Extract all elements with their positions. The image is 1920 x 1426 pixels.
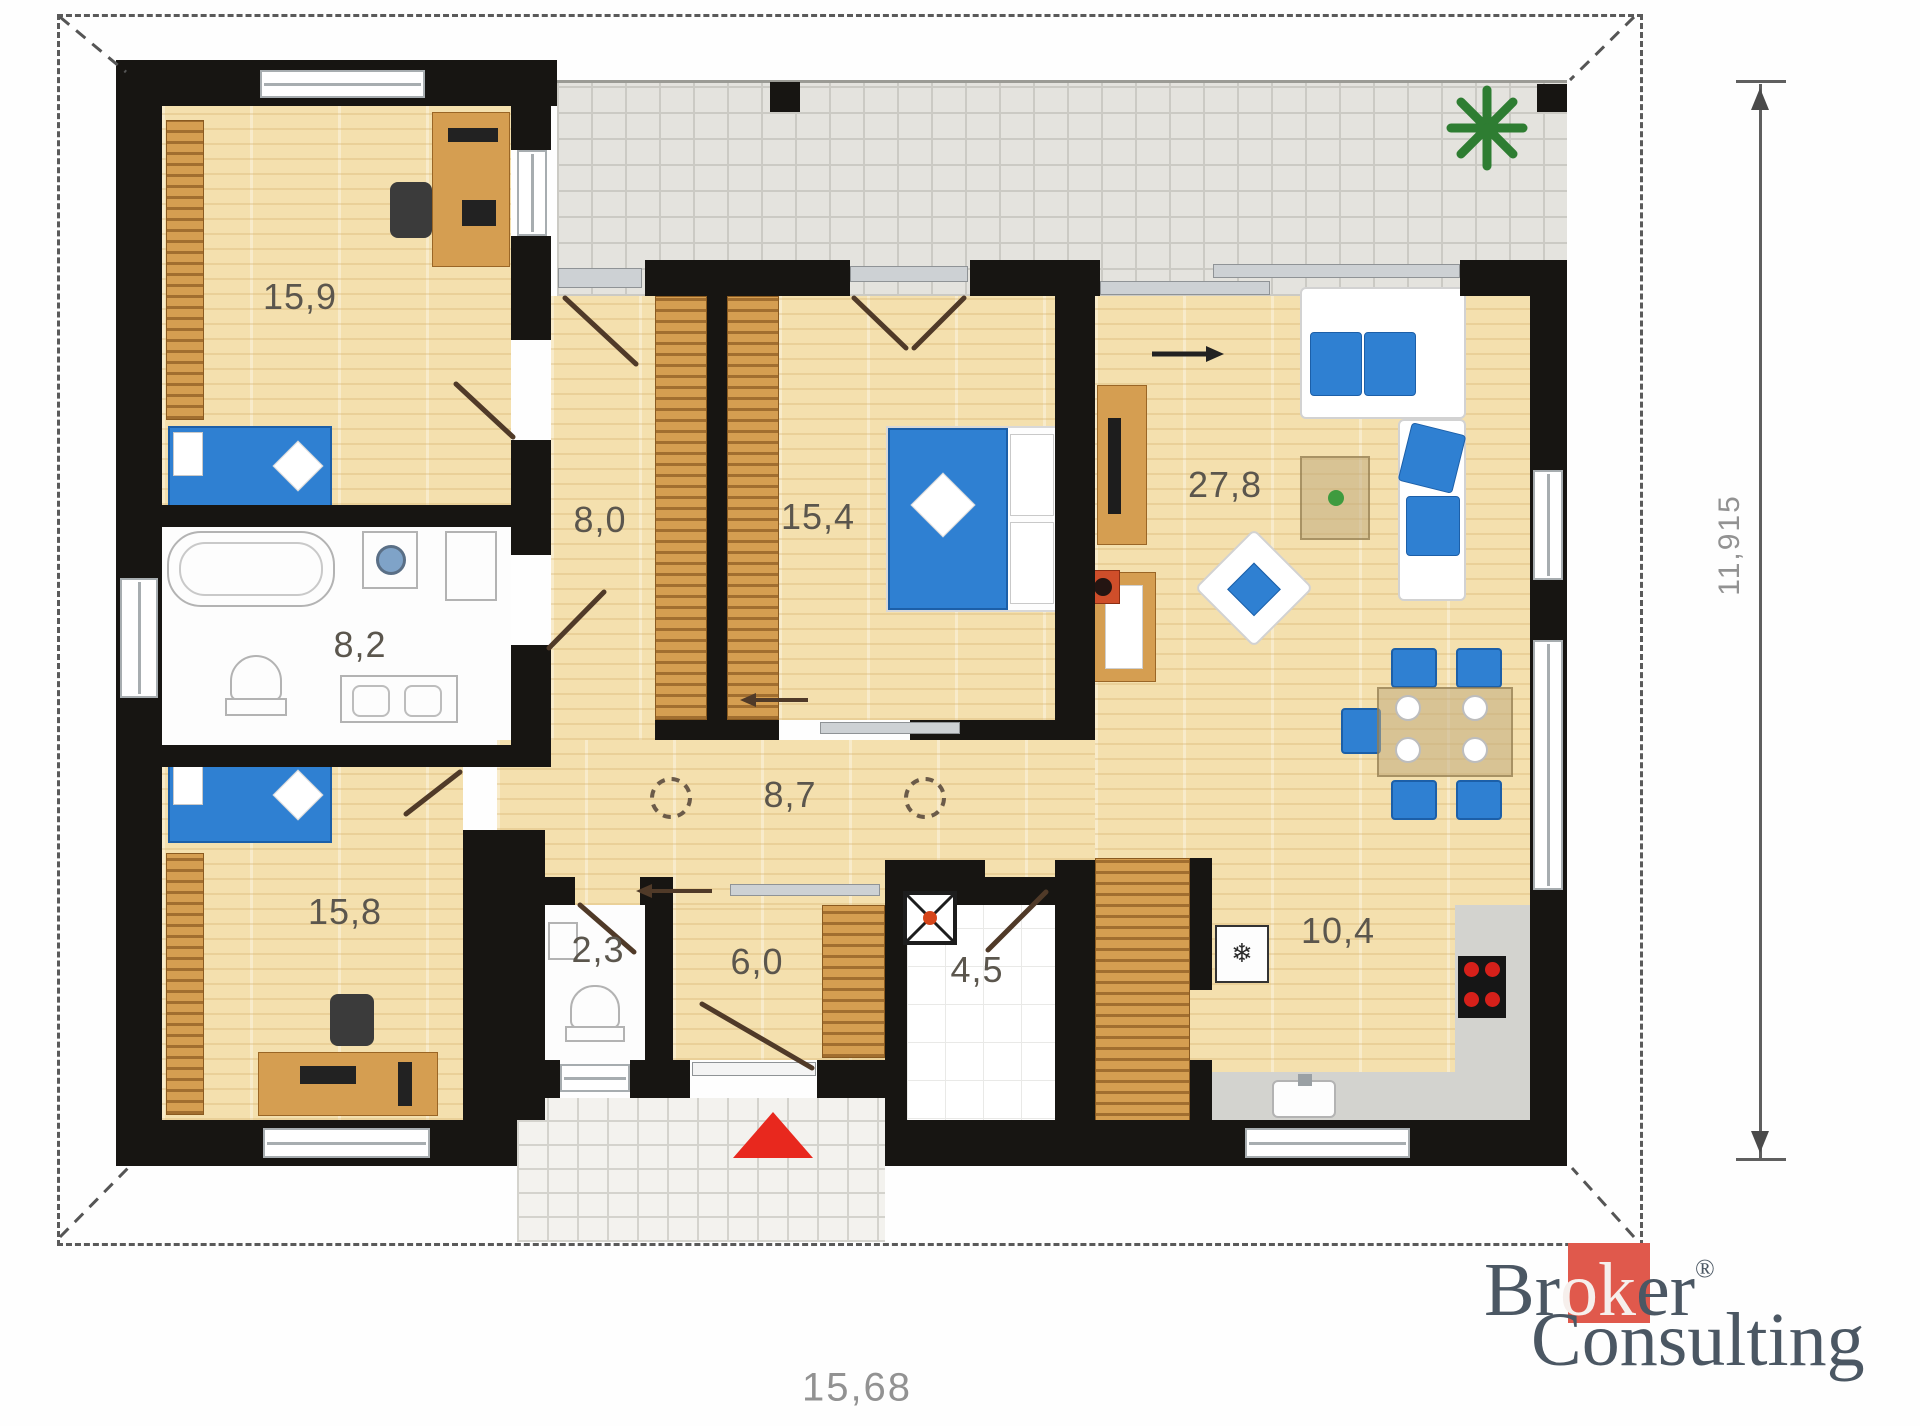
burner-icon: [1485, 962, 1500, 977]
terrace-pillar: [770, 82, 800, 112]
wall-segment: [885, 1120, 1567, 1166]
sink-basin: [404, 685, 442, 717]
room-label-entry: 6,0: [730, 941, 783, 983]
wall-segment: [645, 260, 850, 296]
desk-items: [448, 128, 498, 142]
room-label-kitchen: 10,4: [1301, 910, 1375, 952]
kitchen-sink: [1272, 1080, 1336, 1118]
built-in-wardrobe: [727, 296, 779, 720]
wardrobe: [166, 853, 204, 1115]
toilet-bowl: [230, 655, 282, 701]
window: [1533, 470, 1563, 580]
wall-segment: [655, 720, 779, 740]
sofa-cushion: [1310, 332, 1362, 396]
room-label-bedroom-middle: 15,4: [781, 496, 855, 538]
wall-segment: [511, 106, 551, 150]
cooktop: [1458, 956, 1506, 1018]
wall-segment: [511, 440, 551, 555]
wardrobe: [166, 120, 204, 420]
tv: [1108, 418, 1121, 514]
sliding-door-panel: [850, 266, 968, 282]
coffee-table: [1300, 456, 1370, 540]
dimension-arrow-up: [1751, 88, 1769, 110]
tv-cabinet: [1097, 385, 1147, 545]
room-technical: [907, 890, 1055, 1120]
bathtub-inner: [179, 542, 323, 596]
sliding-door-panel: [820, 722, 960, 734]
stove-ring-icon: [1094, 578, 1112, 596]
wall-segment: [970, 260, 1100, 296]
plate: [1462, 695, 1488, 721]
wall-segment: [1460, 260, 1567, 296]
toilet-tank: [225, 698, 287, 716]
sliding-door-panel: [1213, 264, 1460, 278]
washing-machine: [362, 531, 418, 589]
desk-items: [398, 1062, 412, 1106]
wall-segment: [1190, 1060, 1212, 1128]
window: [517, 150, 547, 236]
pantry-shelves: [1095, 858, 1190, 1128]
room-label-bathroom: 8,2: [333, 624, 386, 666]
window: [1245, 1128, 1410, 1158]
fridge-icon: ❄: [1215, 925, 1269, 983]
entry-wardrobe: [822, 905, 885, 1058]
plate: [1395, 695, 1421, 721]
dining-chair: [1456, 780, 1502, 820]
dining-chair: [1341, 708, 1381, 754]
wall-segment: [640, 877, 673, 905]
desk-chair: [390, 182, 432, 238]
window: [560, 1064, 630, 1092]
window: [260, 70, 425, 98]
wall-segment: [116, 745, 551, 767]
room-label-living-room: 27,8: [1188, 464, 1262, 506]
dimension-tick: [1736, 1158, 1786, 1161]
burner-icon: [1464, 992, 1479, 1007]
armchair-cushion: [1227, 563, 1281, 617]
dimension-line-vertical: [1759, 84, 1762, 1160]
desk-items: [300, 1066, 356, 1084]
room-label-corridor: 8,7: [763, 774, 816, 816]
terrace-edge: [557, 80, 1567, 83]
vanity-double-sink: [340, 675, 458, 723]
washing-machine-drum-icon: [376, 545, 406, 575]
faucet-icon: [1298, 1074, 1312, 1086]
registered-mark-icon: ®: [1695, 1254, 1715, 1283]
room-label-technical: 4,5: [950, 949, 1003, 991]
bathtub: [167, 531, 335, 607]
room-label-wc: 2,3: [571, 929, 624, 971]
sliding-door-panel: [730, 884, 880, 896]
entrance-porch-paving: [517, 1098, 885, 1242]
sink-basin: [352, 685, 390, 717]
entrance-marker-triangle: [733, 1112, 813, 1158]
sliding-door-panel: [1100, 281, 1270, 295]
bed-pillow: [1010, 434, 1054, 516]
wc-toilet-tank: [565, 1026, 625, 1042]
room-label-bedroom-bottom-left: 15,8: [308, 891, 382, 933]
entrance-door-threshold: [692, 1062, 816, 1076]
terrace-door-threshold: [558, 268, 642, 288]
plate: [1395, 737, 1421, 763]
desk-chair: [330, 994, 374, 1046]
dimension-tick: [1736, 80, 1786, 83]
plate: [1462, 737, 1488, 763]
built-in-wardrobe: [655, 296, 707, 720]
bed-pillow: [173, 761, 203, 805]
wall-segment: [1055, 296, 1095, 740]
dimension-label-height: 11,915: [1713, 494, 1747, 596]
bed-pillow: [173, 432, 203, 476]
dimension-arrow-down: [1751, 1131, 1769, 1153]
table-plant-icon: [1328, 490, 1344, 506]
room-label-hall: 8,0: [573, 499, 626, 541]
shower: [445, 531, 497, 601]
bed-pillow: [1010, 522, 1054, 604]
window: [120, 578, 158, 698]
wall-segment: [116, 505, 551, 527]
wall-segment: [545, 877, 575, 905]
burner-icon: [1464, 962, 1479, 977]
wall-segment: [707, 296, 727, 740]
wall-segment: [517, 1060, 560, 1098]
wc-toilet-bowl: [570, 985, 620, 1029]
wall-segment: [817, 1060, 885, 1098]
room-label-bedroom-top-left: 15,9: [263, 276, 337, 318]
wall-segment: [511, 236, 551, 340]
sofa-cushion: [1406, 496, 1460, 556]
dining-chair: [1391, 648, 1437, 688]
wall-segment: [645, 905, 673, 1062]
kitchen-counter-bottom: [1212, 1072, 1530, 1122]
logo-word-consulting: Consulting: [1531, 1302, 1865, 1378]
dining-chair: [1456, 648, 1502, 688]
burner-icon: [1485, 992, 1500, 1007]
wall-segment: [630, 1060, 690, 1098]
window: [1533, 640, 1563, 890]
wall-segment: [1190, 858, 1212, 990]
terrace-pillar: [1537, 84, 1567, 112]
wall-segment: [511, 645, 551, 745]
dining-chair: [1391, 780, 1437, 820]
snowflake-glyph: ❄: [1231, 939, 1253, 969]
window: [263, 1128, 430, 1158]
desk-items: [462, 200, 496, 226]
floor-plan-canvas: ❄: [0, 0, 1920, 1426]
sofa-cushion: [1364, 332, 1416, 396]
dimension-label-width: 15,68: [802, 1366, 912, 1411]
